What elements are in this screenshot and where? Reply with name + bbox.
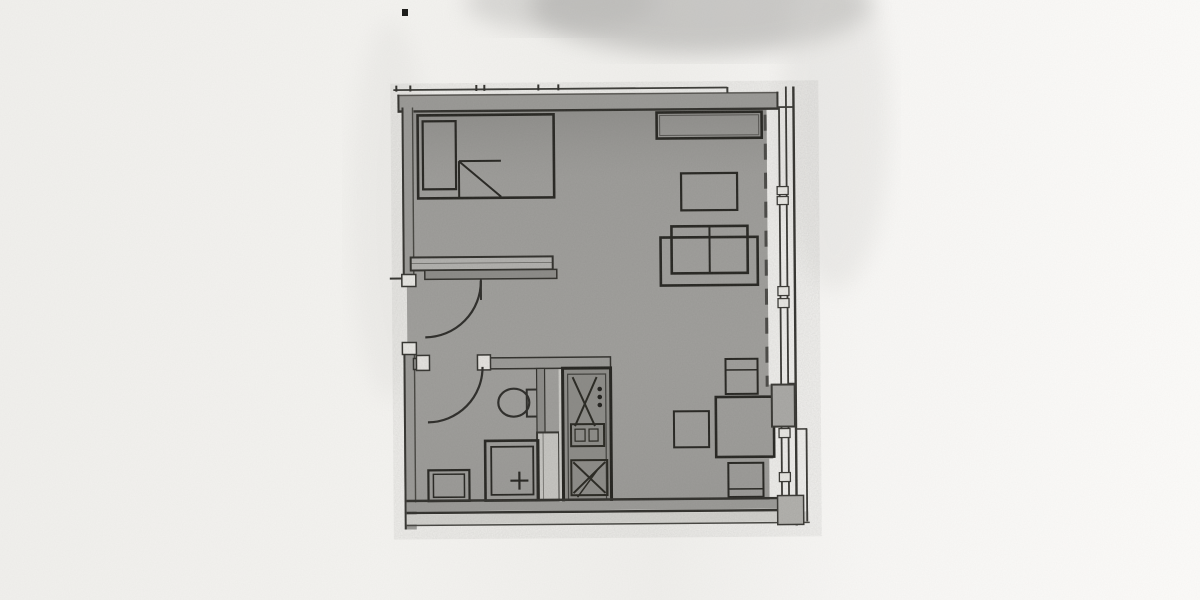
photo-grain bbox=[0, 0, 1200, 600]
scanned-floorplan-photo bbox=[0, 0, 1200, 600]
floorplan-canvas bbox=[0, 0, 1200, 600]
